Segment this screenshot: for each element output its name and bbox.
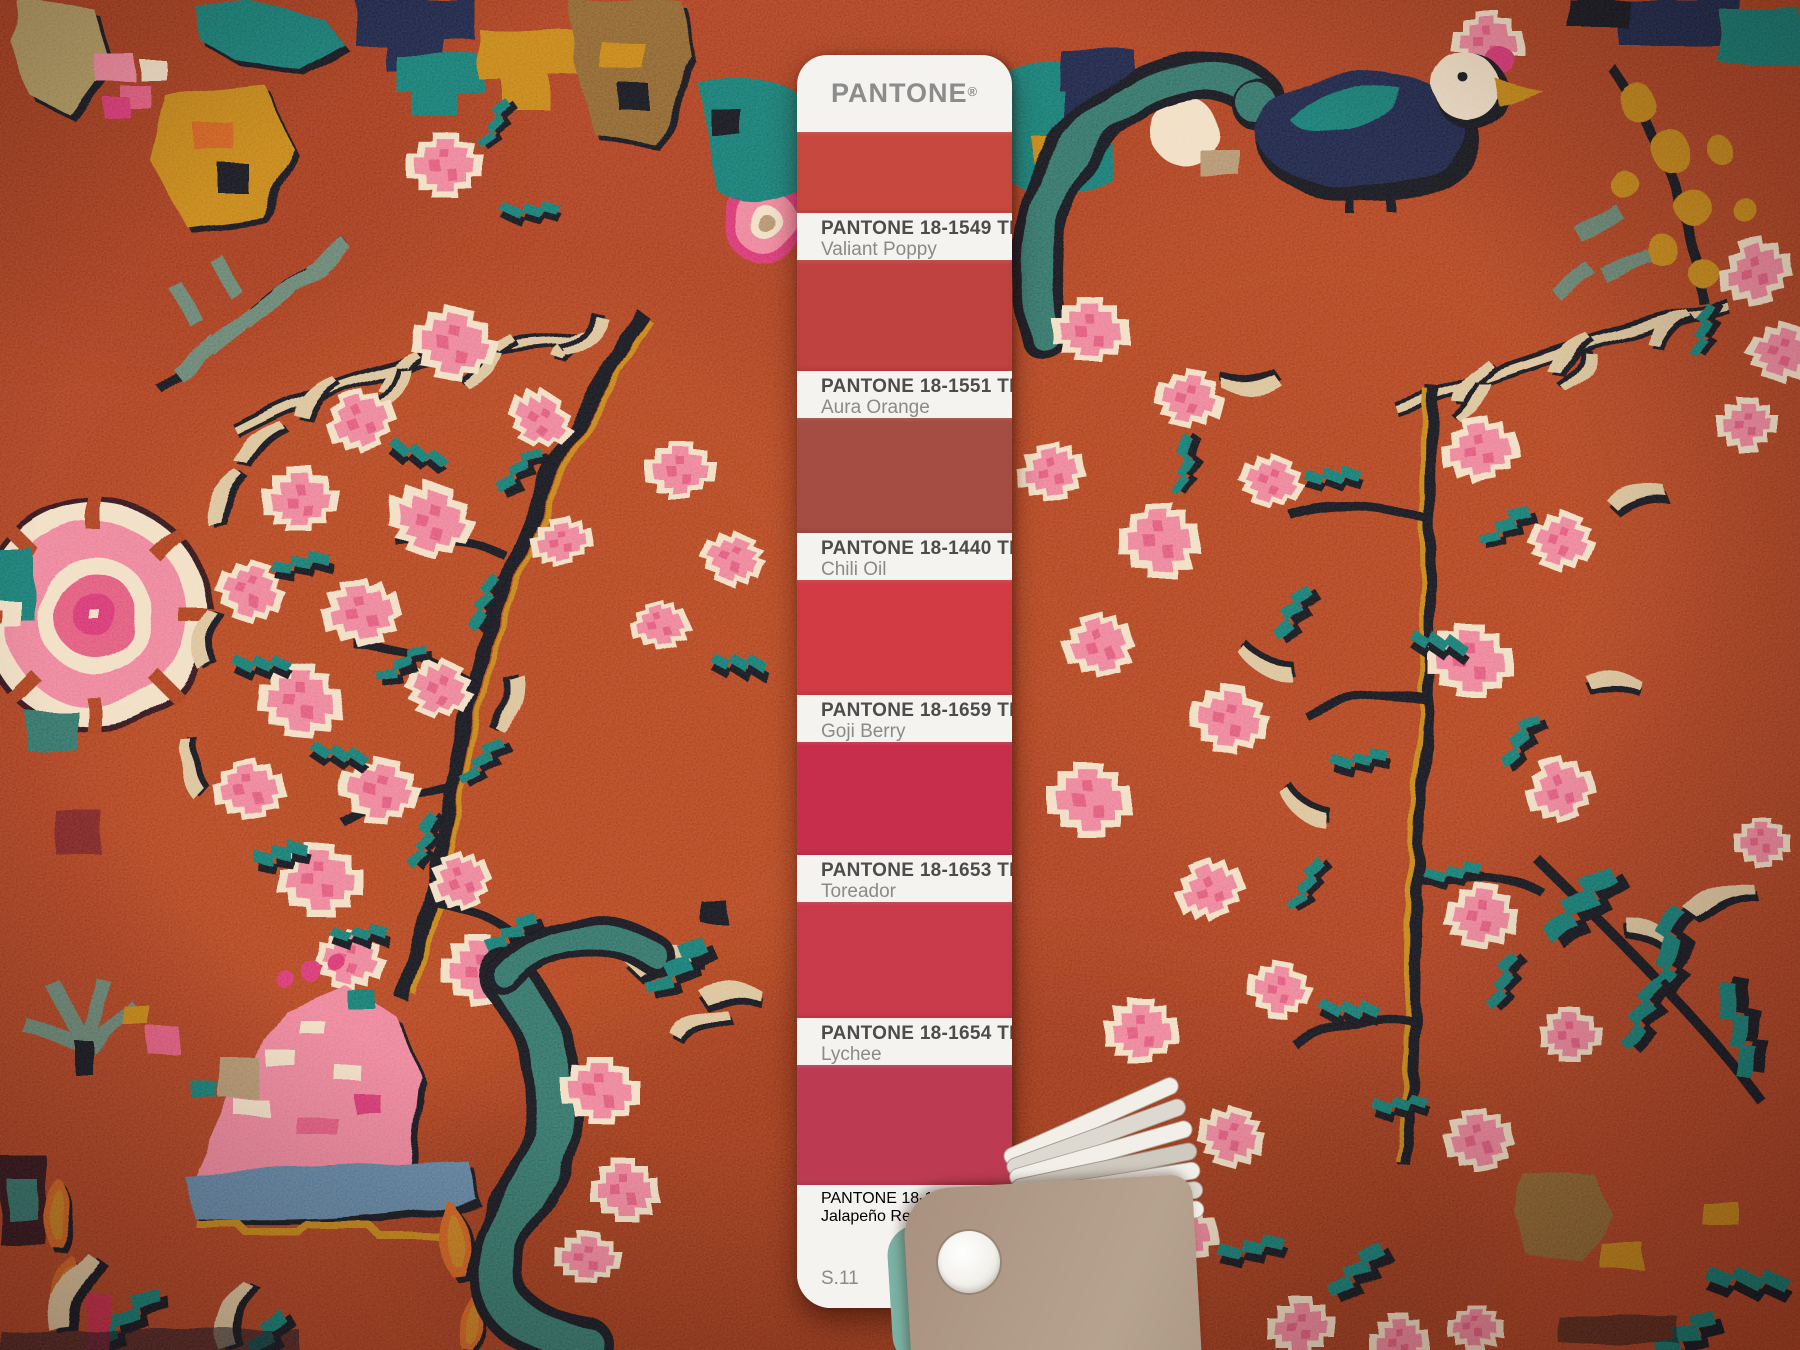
swatch-name: Lychee bbox=[821, 1044, 1012, 1065]
swatch-label-lychee: PANTONE 18-1654 TPG Lychee bbox=[797, 1018, 1012, 1065]
swatch-name: Toreador bbox=[821, 881, 1012, 902]
swatch-name: Goji Berry bbox=[821, 721, 1012, 742]
swatch-chip-aura-orange bbox=[797, 260, 1012, 371]
swatch-code: PANTONE 18-1653 TPG bbox=[821, 860, 1012, 881]
swatch-name: Aura Orange bbox=[821, 397, 1012, 418]
photo-stage: PANTONE® PANTONE 18-1549 TPG Valiant Pop… bbox=[0, 0, 1800, 1350]
strip-header: PANTONE® bbox=[797, 55, 1012, 132]
swatch-chip-chili-oil bbox=[797, 418, 1012, 533]
swatch-label-chili-oil: PANTONE 18-1440 TPG Chili Oil bbox=[797, 533, 1012, 580]
swatch-name: Valiant Poppy bbox=[821, 239, 1012, 260]
swatch-chip-valiant-poppy bbox=[797, 132, 1012, 213]
pantone-strip: PANTONE® PANTONE 18-1549 TPG Valiant Pop… bbox=[797, 55, 1012, 1308]
swatch-chip-lychee bbox=[797, 902, 1012, 1018]
swatch-chip-jalapeno-red bbox=[797, 1065, 1012, 1185]
swatch-label-toreador: PANTONE 18-1653 TPG Toreador bbox=[797, 855, 1012, 902]
swatch-label-valiant-poppy: PANTONE 18-1549 TPG Valiant Poppy bbox=[797, 213, 1012, 260]
swatch-name: Chili Oil bbox=[821, 559, 1012, 580]
swatch-code: PANTONE 18-1654 TPG bbox=[821, 1023, 1012, 1044]
swatch-code: PANTONE 18-1659 TPG bbox=[821, 700, 1012, 721]
strip-series-index: S.11 bbox=[821, 1268, 859, 1290]
swatch-code: PANTONE 18-1549 TPG bbox=[821, 218, 1012, 239]
swatch-chip-goji-berry bbox=[797, 580, 1012, 695]
pantone-logo: PANTONE® bbox=[831, 78, 978, 109]
swatch-code: PANTONE 18-1440 TPG bbox=[821, 538, 1012, 559]
swatch-chip-toreador bbox=[797, 742, 1012, 855]
registered-mark: ® bbox=[967, 84, 978, 99]
swatch-code: PANTONE 18-1551 TPG bbox=[821, 376, 1012, 397]
swatch-label-goji-berry: PANTONE 18-1659 TPG Goji Berry bbox=[797, 695, 1012, 742]
swatch-label-aura-orange: PANTONE 18-1551 TPG Aura Orange bbox=[797, 371, 1012, 418]
binding-grommet bbox=[938, 1231, 1000, 1293]
